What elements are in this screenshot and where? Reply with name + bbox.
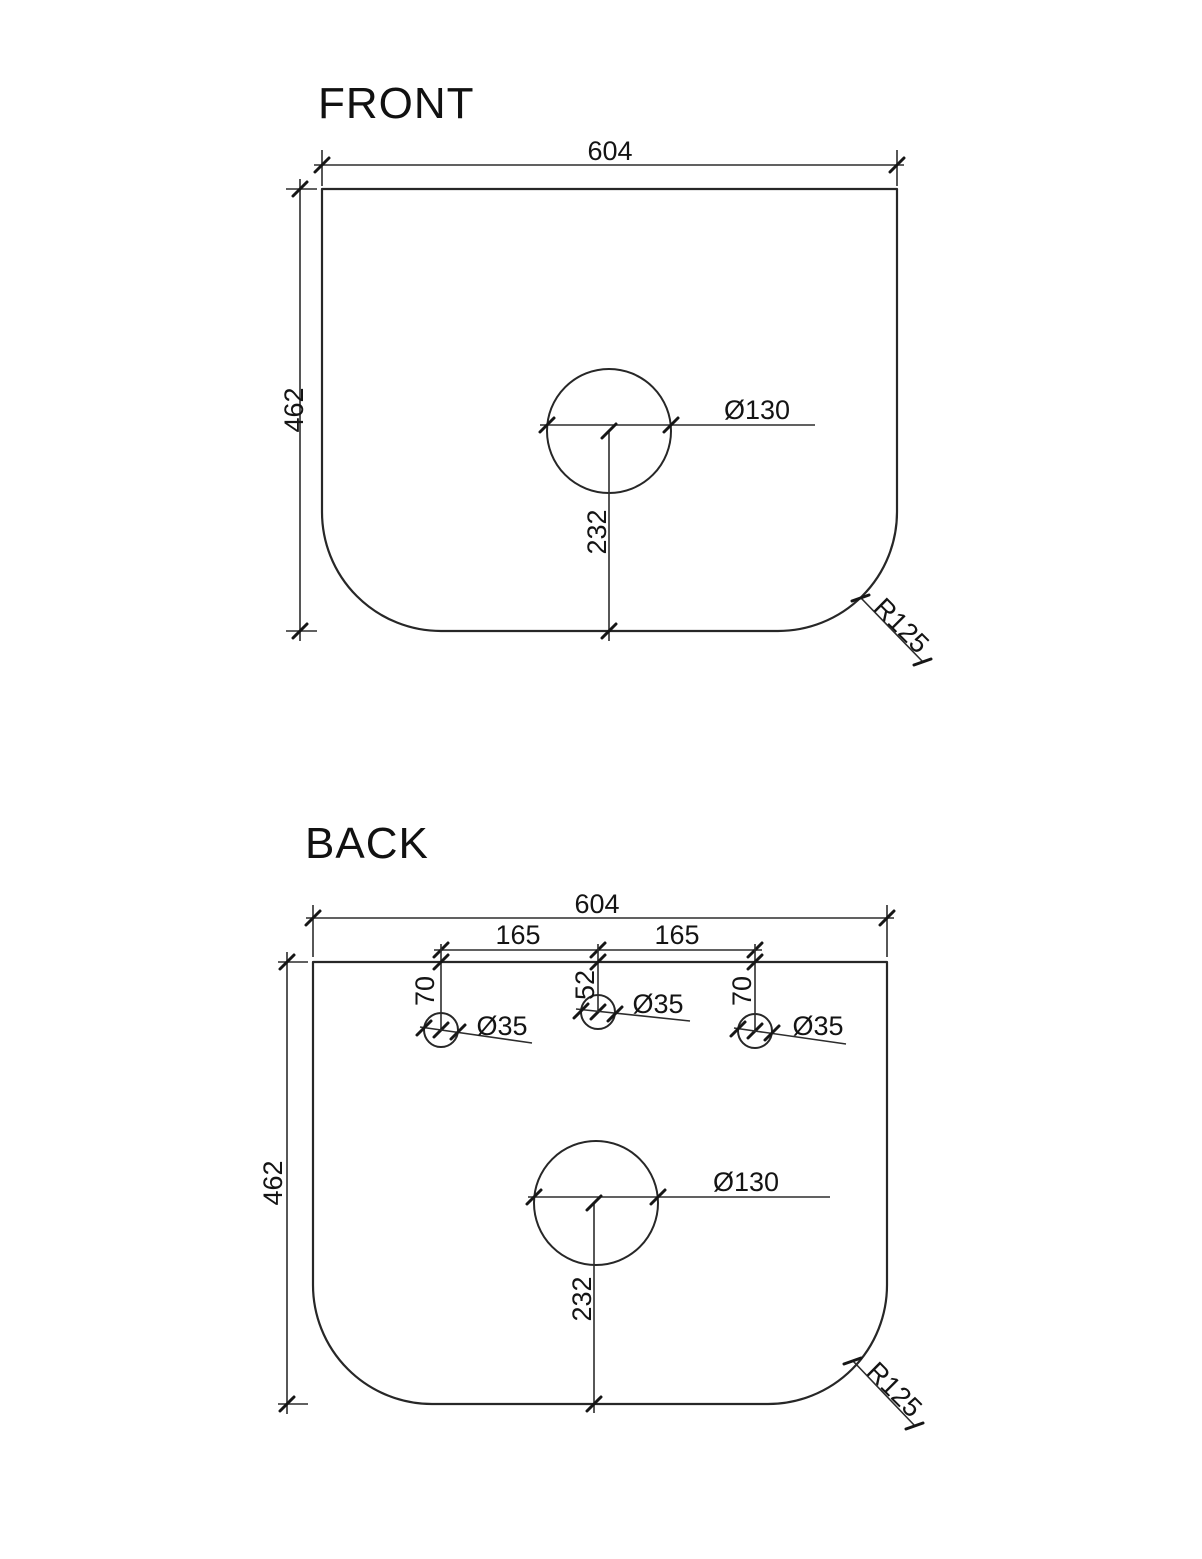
dimension-tick	[852, 595, 869, 601]
technical-drawing: FRONT 604 462 Ø130	[0, 0, 1202, 1559]
front-width-dimension: 604	[314, 136, 904, 186]
back-tap-center-diameter-label: Ø35	[632, 989, 683, 1019]
back-corner-radius-dimension: R125	[844, 1356, 928, 1429]
back-height-dimension: 462	[258, 952, 308, 1414]
front-basin-offset-label: 232	[582, 509, 612, 554]
front-view: FRONT 604 462 Ø130	[279, 79, 935, 665]
back-corner-radius-label: R125	[861, 1356, 928, 1423]
front-corner-radius-label: R125	[868, 592, 935, 659]
back-tap-right-diameter-label: Ø35	[792, 1011, 843, 1041]
back-basin-diameter-label: Ø130	[713, 1167, 779, 1197]
front-basin-offset-dimension: 232	[582, 424, 616, 641]
front-view-title: FRONT	[318, 79, 475, 128]
back-tap-left-diameter-label: Ø35	[476, 1011, 527, 1041]
front-width-label: 604	[587, 136, 632, 166]
dimension-tick	[914, 659, 931, 665]
back-basin-offset-dimension: 232	[567, 1196, 601, 1413]
back-view-title: BACK	[305, 819, 429, 868]
back-tap-center-offset-label: 52	[570, 970, 600, 1000]
back-tap-right-offset-label: 70	[727, 976, 757, 1006]
front-corner-radius-dimension: R125	[852, 592, 935, 665]
back-tap-left-offset-label: 70	[410, 976, 440, 1006]
back-view: BACK 604 165 165	[258, 819, 928, 1429]
back-basin-offset-label: 232	[567, 1276, 597, 1321]
back-width-label: 604	[574, 889, 619, 919]
back-tap-spacing-left-label: 165	[495, 920, 540, 950]
back-tap-spacing-right-label: 165	[654, 920, 699, 950]
front-basin-diameter-dimension: Ø130	[540, 395, 815, 432]
back-basin-diameter-dimension: Ø130	[527, 1167, 830, 1204]
front-basin-diameter-label: Ø130	[724, 395, 790, 425]
front-height-label: 462	[279, 387, 309, 432]
dimension-tick	[906, 1423, 923, 1429]
back-height-label: 462	[258, 1160, 288, 1205]
back-tap-center-offset-dimension: 52	[570, 944, 605, 1019]
front-height-dimension: 462	[279, 179, 317, 641]
